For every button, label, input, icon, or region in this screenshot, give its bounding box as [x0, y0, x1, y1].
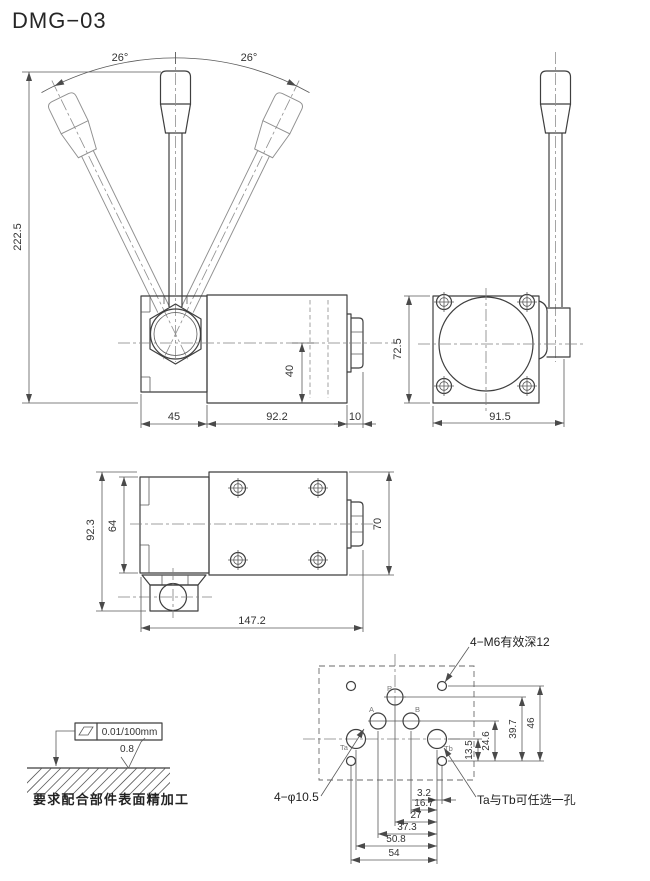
top-bracket-outline	[140, 477, 209, 573]
dim-13-5: 13.5	[464, 740, 475, 760]
top-bracket-tabs	[140, 477, 149, 573]
lever-ghost-right	[150, 74, 313, 366]
valve-body-outline	[207, 295, 347, 403]
dim-16-7: 16.7	[414, 798, 434, 809]
dim-39-7: 39.7	[508, 719, 519, 739]
top-view: 92.3 64 70 147.2	[85, 472, 394, 632]
screw	[308, 478, 328, 498]
port-label-b: B	[415, 705, 420, 714]
port-label-ta: Ta	[340, 743, 349, 752]
dim-54: 54	[388, 848, 400, 859]
page-title: DMG−03	[12, 8, 107, 33]
dim-92-3: 92.3	[85, 519, 97, 540]
ext-lines-222-5	[22, 72, 161, 403]
lever-ghost-left	[38, 74, 201, 366]
dim-40: 40	[284, 365, 296, 377]
side-view: 72.5 91.5	[392, 52, 585, 427]
flatness-symbol-icon	[79, 727, 93, 735]
dim-46: 46	[526, 717, 537, 729]
hidden-bore-lines	[310, 300, 328, 398]
ext-lines-72-5	[404, 296, 430, 403]
port-label-a: A	[369, 705, 374, 714]
dim-91-5: 91.5	[489, 411, 510, 423]
dim-50-8: 50.8	[386, 834, 406, 845]
screw	[308, 550, 328, 570]
port-layout: P A B Ta Tb 4−M6有效深12 4−φ10.5 Ta与Tb可任选一孔…	[274, 634, 576, 864]
top-clevis	[150, 585, 198, 611]
roughness-value: 0.8	[120, 744, 134, 755]
dim-222-5: 222.5	[12, 223, 24, 251]
screw-bottom-left	[434, 376, 454, 396]
pivot-nut-profile	[539, 301, 547, 359]
bolt-hole-top-right	[438, 682, 447, 691]
top-body-outline	[209, 472, 347, 575]
bolt-hole-bottom-right	[438, 757, 447, 766]
machining-note: 要求配合部件表面精加工	[33, 792, 189, 807]
phi-callout: 4−φ10.5	[274, 790, 319, 804]
angle-right-label: 26°	[241, 52, 258, 64]
drawing-page: DMG−03 26° 26° 222.5	[0, 0, 650, 881]
screw-bottom-right	[517, 376, 537, 396]
dim-70: 70	[372, 518, 384, 530]
screw-top-left	[434, 292, 454, 312]
port-label-p: P	[387, 684, 392, 693]
tolerance-leader	[56, 731, 75, 757]
surface-finish-note: 0.01/100mm 0.8 要求配合部件表面精加工	[16, 723, 189, 807]
screw	[228, 550, 248, 570]
bolt-hole-top-left	[347, 682, 356, 691]
side-lever-bracket	[547, 308, 570, 357]
flatness-value: 0.01/100mm	[102, 727, 158, 738]
m6-callout: 4−M6有效深12	[470, 634, 550, 649]
bolt-hole-bottom-left	[347, 757, 356, 766]
dim-27: 27	[410, 810, 422, 821]
bracket-tabs	[141, 296, 150, 392]
dim-147-2: 147.2	[238, 615, 266, 627]
dim-45: 45	[168, 411, 180, 423]
engineering-drawing: DMG−03 26° 26° 222.5	[0, 0, 650, 881]
dim-24-6: 24.6	[481, 731, 492, 751]
m6-leader	[445, 647, 469, 682]
lever-side	[541, 52, 571, 362]
angle-left-label: 26°	[112, 52, 129, 64]
port-label-tb: Tb	[444, 744, 453, 753]
dim-37-3: 37.3	[397, 822, 417, 833]
lever-bracket-outline	[141, 296, 207, 392]
surface-hatching	[16, 768, 185, 794]
front-view: 26° 26° 222.5 45 92.2 10 40	[12, 52, 397, 428]
dim-64: 64	[107, 520, 119, 532]
screw	[228, 478, 248, 498]
dim-92-2: 92.2	[266, 411, 287, 423]
port-cross-ticks	[368, 697, 421, 721]
ta-tb-callout: Ta与Tb可任选一孔	[477, 793, 576, 807]
ext-lines-64	[119, 477, 138, 573]
dim-10: 10	[349, 411, 361, 423]
ext-lines-92-3	[96, 472, 146, 611]
dim-72-5: 72.5	[392, 338, 404, 359]
screw-top-right	[517, 292, 537, 312]
